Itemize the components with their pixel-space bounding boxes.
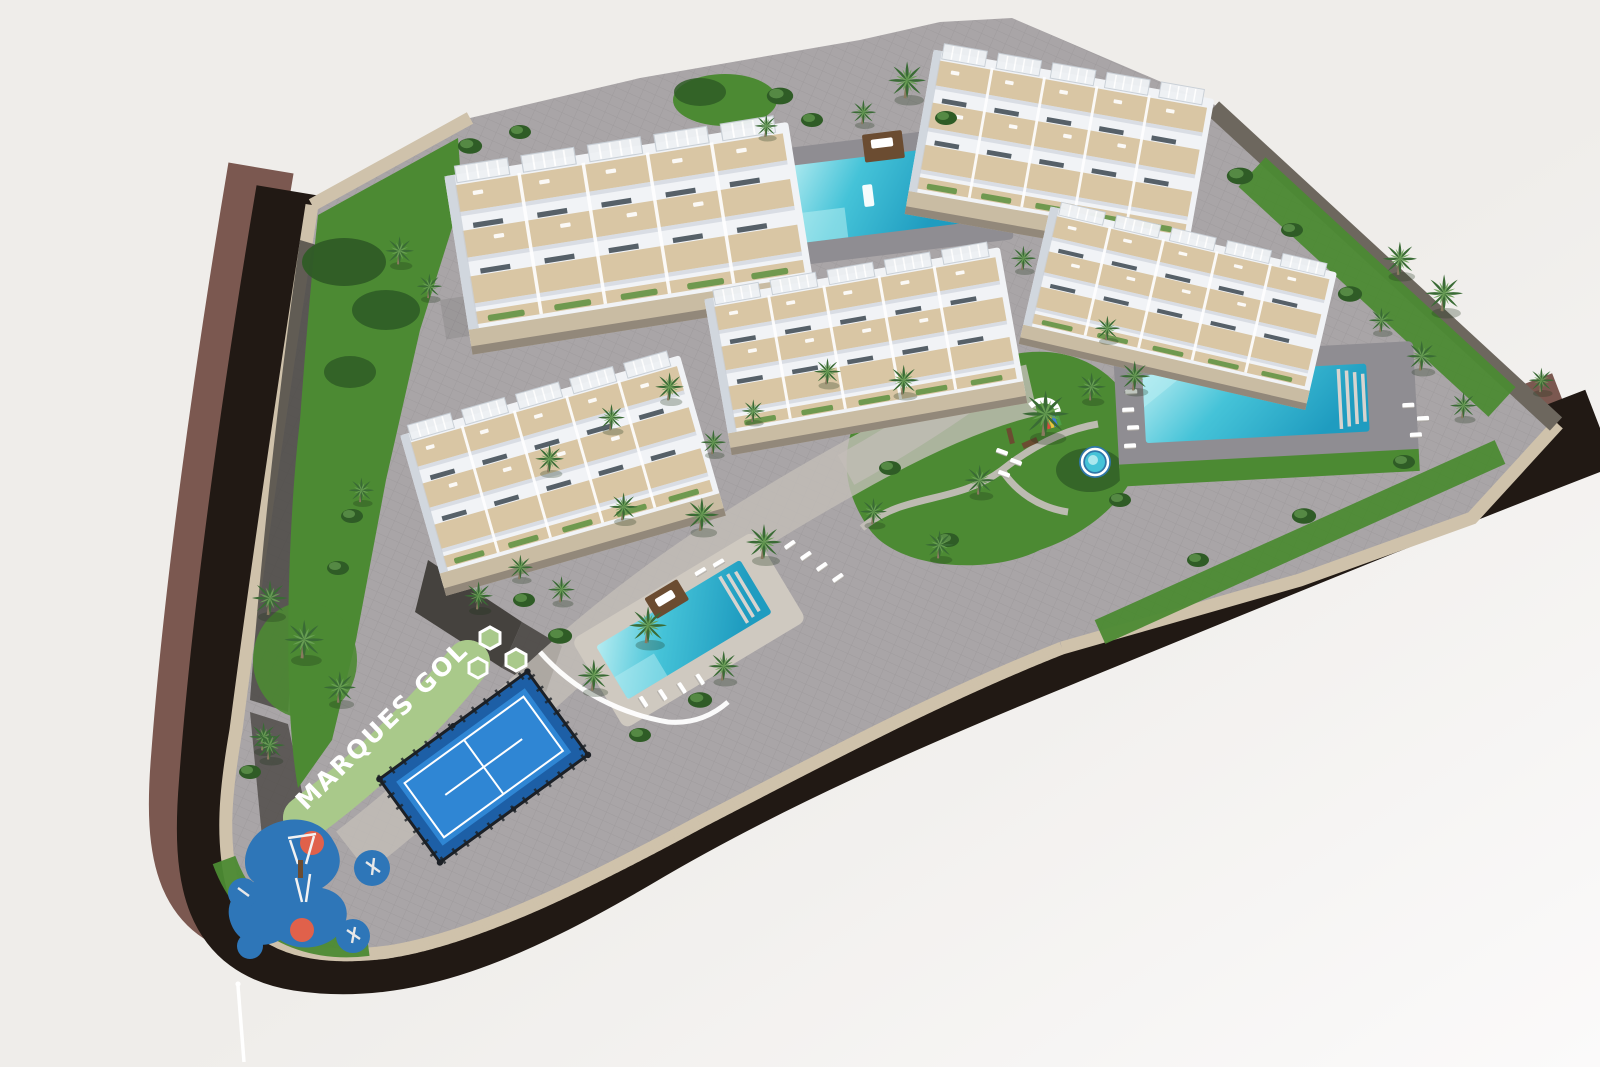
playground-safety-circle: [290, 918, 314, 942]
aerial-site-render: MARQUES GOLF: [0, 0, 1600, 1067]
site-plan-svg: MARQUES GOLF: [0, 0, 1600, 1067]
kids-pool: [1079, 446, 1111, 478]
